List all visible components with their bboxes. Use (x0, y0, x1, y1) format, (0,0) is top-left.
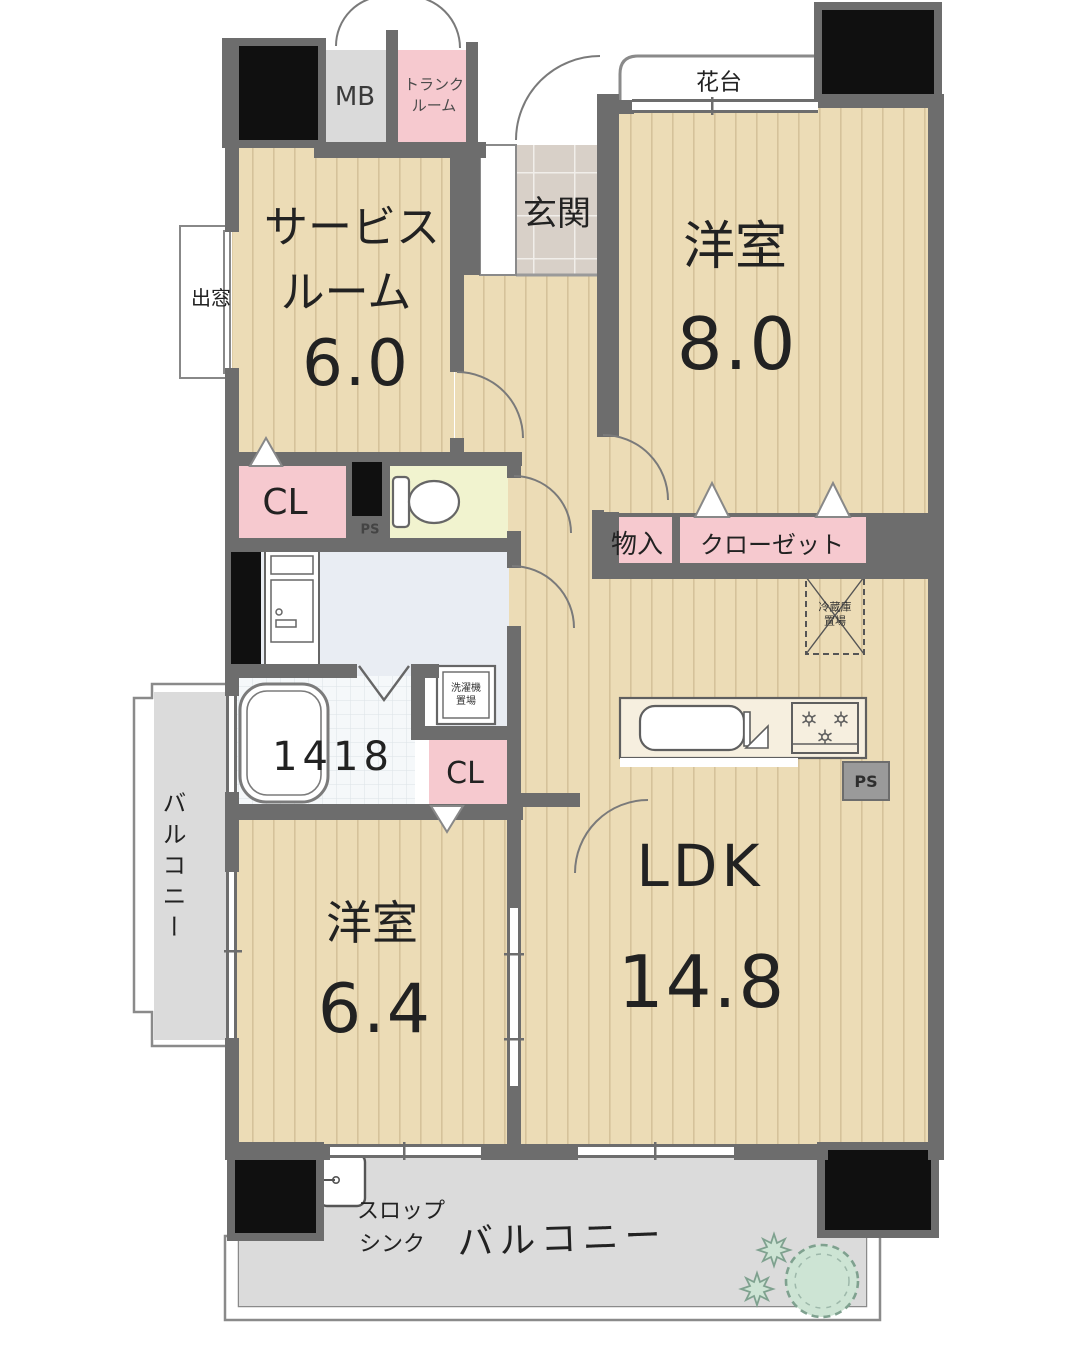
label-western64-size: 6.4 (318, 976, 432, 1044)
label-ldk-name: LDK (636, 837, 763, 895)
washer-pan-icon (437, 666, 495, 724)
label-fridge-2: 置場 (824, 616, 846, 627)
bush-icon (758, 1234, 790, 1266)
label-service-room-2: ルーム (281, 271, 412, 315)
label-washer-2: 置場 (456, 697, 476, 707)
shoe-cabinet (480, 145, 516, 275)
trunk-door-arc (408, 0, 460, 48)
pillar-bottom-left (235, 1150, 316, 1233)
label-meter-box: MB (335, 84, 375, 110)
label-storage: 物入 (611, 532, 663, 558)
label-balcony-bottom: バルコニー (457, 1218, 667, 1261)
label-slop-sink-2: シンク (359, 1234, 425, 1256)
toilet-bowl-icon (409, 481, 459, 523)
pillar-bottom-right (825, 1150, 931, 1230)
label-flower-stand: 花台 (696, 72, 742, 95)
kitchen-faucet-icon (744, 712, 750, 746)
label-trunk-room-2: ルーム (412, 99, 457, 114)
label-service-room-size: 6.0 (302, 332, 410, 396)
toilet-tank-icon (393, 477, 409, 527)
mb-door-arc (336, 0, 386, 46)
label-bath-size: 1418 (272, 737, 394, 777)
label-closet-upper: CL (262, 485, 307, 521)
label-washer-1: 洗濯機 (451, 684, 481, 694)
label-balcony-left: バルコニー (160, 791, 184, 946)
entrance-porch (486, 56, 597, 144)
pillar-top-right (822, 10, 934, 96)
kitchen-sink-icon (640, 706, 744, 750)
label-fridge-1: 冷蔵庫 (819, 602, 852, 613)
label-slop-sink-1: スロップ (357, 1201, 445, 1223)
vanity-icon (265, 550, 319, 668)
label-ldk-size: 14.8 (618, 946, 786, 1018)
bush-icon (741, 1273, 773, 1305)
label-western8-size: 8.0 (677, 308, 798, 380)
floorplan-page: MB トランク ルーム 花台 出窓 玄関 サービス ルーム 6.0 洋室 8.0… (0, 0, 1080, 1350)
label-western64-name: 洋室 (326, 900, 418, 946)
label-service-room-1: サービス (264, 206, 440, 250)
duct-black-strip (231, 547, 261, 667)
floors-layer (134, 50, 935, 1320)
pillar-top-left (230, 46, 318, 140)
label-ps-lower: PS (854, 774, 877, 790)
label-western8-name: 洋室 (683, 221, 787, 273)
label-trunk-room-1: トランク (404, 78, 464, 93)
tree-icon (786, 1245, 858, 1317)
label-ps-upper: PS (361, 524, 380, 537)
label-closet: クローゼット (700, 533, 844, 557)
ps-upper-box (352, 462, 382, 516)
label-entrance: 玄関 (523, 197, 591, 231)
label-bay-window: 出窓 (191, 288, 231, 308)
label-closet-lower: CL (446, 759, 484, 789)
kitchen-counter-front (620, 758, 798, 767)
